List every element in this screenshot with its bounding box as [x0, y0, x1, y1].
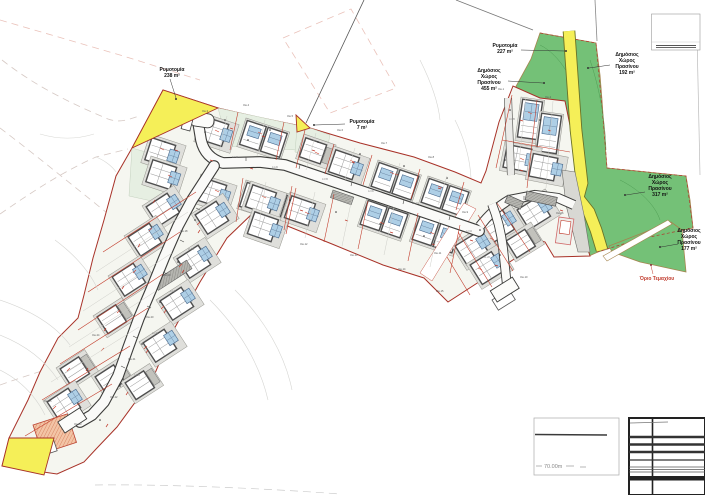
svg-text:Οικ.19: Οικ.19	[163, 273, 171, 277]
svg-text:Οικ.18: Οικ.18	[180, 229, 188, 233]
svg-text:15.10: 15.10	[412, 202, 419, 205]
svg-text:Οικ.23: Οικ.23	[74, 422, 82, 426]
svg-text:177 m²: 177 m²	[681, 246, 697, 252]
svg-text:Οικ.22: Οικ.22	[110, 395, 118, 399]
svg-text:10.35: 10.35	[509, 118, 516, 121]
svg-text:Οικ.12: Οικ.12	[300, 242, 308, 246]
svg-text:11.28: 11.28	[484, 256, 490, 259]
svg-text:Οικ.21: Οικ.21	[128, 357, 136, 361]
svg-text:Οικ.11: Οικ.11	[434, 251, 442, 255]
svg-text:Οικ.13: Οικ.13	[350, 253, 358, 257]
svg-text:7 m²: 7 m²	[357, 125, 368, 131]
svg-text:13.25: 13.25	[170, 290, 177, 293]
svg-text:227 m²: 227 m²	[497, 49, 513, 55]
svg-text:Οικ.25: Οικ.25	[44, 399, 52, 403]
svg-text:Οικ.14: Οικ.14	[398, 267, 406, 271]
svg-text:12.80: 12.80	[368, 190, 375, 193]
svg-text:Οικ.7: Οικ.7	[381, 141, 388, 145]
svg-text:12.62: 12.62	[466, 230, 473, 233]
svg-text:12.40: 12.40	[152, 332, 159, 335]
svg-text:Οικ.3: Οικ.3	[202, 109, 209, 113]
svg-text:Οικ.8: Οικ.8	[428, 155, 435, 159]
svg-text:Οικ.1: Οικ.1	[498, 87, 505, 91]
svg-text:238 m²: 238 m²	[164, 73, 180, 79]
svg-text:Οικ.15: Οικ.15	[436, 289, 444, 293]
svg-text:Οικ.6: Οικ.6	[337, 128, 344, 132]
svg-text:Οικ.9: Οικ.9	[462, 210, 469, 214]
svg-text:192 m²: 192 m²	[619, 70, 635, 76]
svg-text:Οικ.4: Οικ.4	[243, 103, 250, 107]
svg-text:14.20: 14.20	[272, 166, 279, 169]
svg-text:70.00m: 70.00m	[544, 464, 563, 470]
svg-text:11.95: 11.95	[188, 248, 194, 251]
svg-text:14.85: 14.85	[134, 374, 141, 377]
svg-text:13.65: 13.65	[322, 178, 329, 181]
svg-text:Οικ.5: Οικ.5	[287, 114, 294, 118]
svg-text:317 m²: 317 m²	[652, 192, 668, 198]
svg-text:455 m²: 455 m²	[481, 86, 497, 92]
svg-text:Οικ.26: Οικ.26	[556, 211, 564, 215]
svg-text:Οικ.20: Οικ.20	[146, 315, 154, 319]
svg-text:Οικ.2: Οικ.2	[545, 95, 552, 99]
svg-text:Οικ.10: Οικ.10	[520, 275, 528, 279]
svg-text:12.30: 12.30	[232, 156, 239, 159]
svg-text:Οικ.24: Οικ.24	[92, 333, 100, 337]
svg-text:Όριο Τεμαχίου: Όριο Τεμαχίου	[639, 276, 675, 282]
